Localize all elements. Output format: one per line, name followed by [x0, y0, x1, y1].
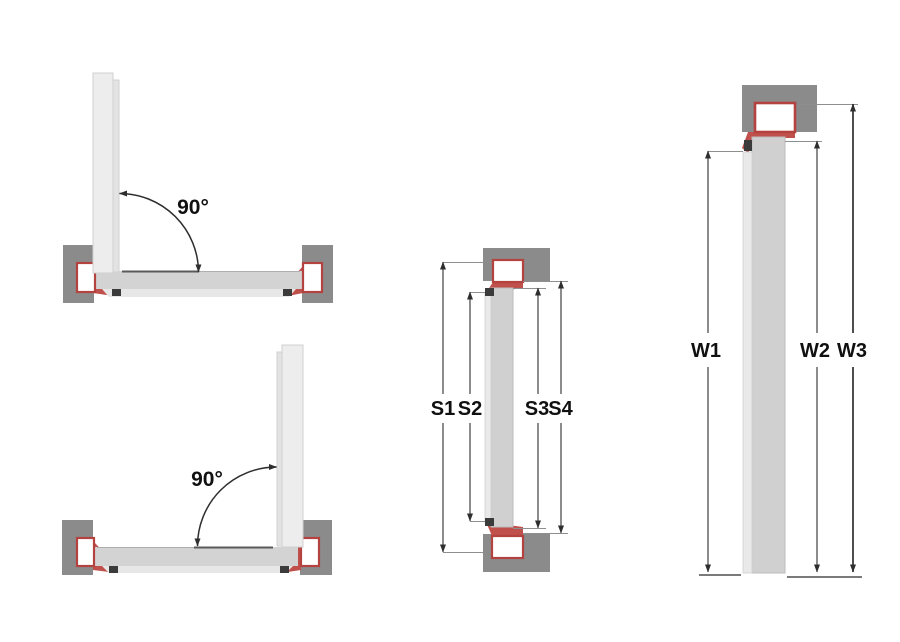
door-panel-edge — [485, 293, 491, 523]
dimension-label-s1: S1 — [431, 398, 455, 420]
gasket-right — [283, 289, 292, 296]
dimension-label-s4: S4 — [548, 398, 573, 420]
door-slab-closed — [95, 547, 298, 566]
gasket-bottom — [485, 518, 494, 526]
frame-profile — [755, 103, 795, 132]
door-swing-diagram-bottom: 90° — [62, 345, 332, 575]
frame-profile-left — [77, 263, 95, 292]
door-panel — [752, 137, 785, 573]
gasket-right — [280, 566, 289, 573]
gasket-left — [109, 566, 118, 573]
frame-section-diagram-w: W1 W2 W3 — [691, 85, 867, 577]
gasket-top — [485, 288, 494, 296]
door-frame-diagrams: 90° 90° S1 — [0, 0, 900, 642]
gasket-left — [112, 289, 121, 296]
door-panel-edge — [743, 152, 752, 573]
dimension-label-s3: S3 — [525, 398, 549, 420]
frame-profile-right — [303, 263, 322, 292]
door-panel — [491, 288, 513, 527]
angle-label: 90° — [177, 196, 209, 219]
door-leaf-edge — [113, 80, 119, 272]
frame-profile-right — [301, 538, 319, 566]
dimension-label-w2: W2 — [800, 340, 830, 362]
door-leaf-open — [93, 73, 113, 273]
dimension-label-w1: W1 — [691, 340, 721, 362]
frame-profile-left — [77, 538, 94, 566]
frame-profile-bottom — [492, 536, 523, 558]
frame-section-diagram-s: S1 S2 S3 S4 — [431, 248, 574, 572]
dimension-label-s2: S2 — [458, 398, 482, 420]
door-leaf-edge — [277, 352, 282, 546]
dimension-label-w3: W3 — [837, 340, 867, 362]
diagram-canvas: 90° 90° S1 — [0, 0, 900, 642]
frame-profile-top — [493, 260, 523, 282]
door-swing-diagram-top: 90° — [63, 73, 333, 303]
door-slab-underside — [102, 566, 293, 573]
door-slab-closed — [95, 271, 302, 289]
door-leaf-open — [282, 345, 303, 547]
gasket — [744, 140, 752, 151]
angle-label: 90° — [191, 468, 223, 491]
door-slab-underside — [102, 289, 296, 297]
